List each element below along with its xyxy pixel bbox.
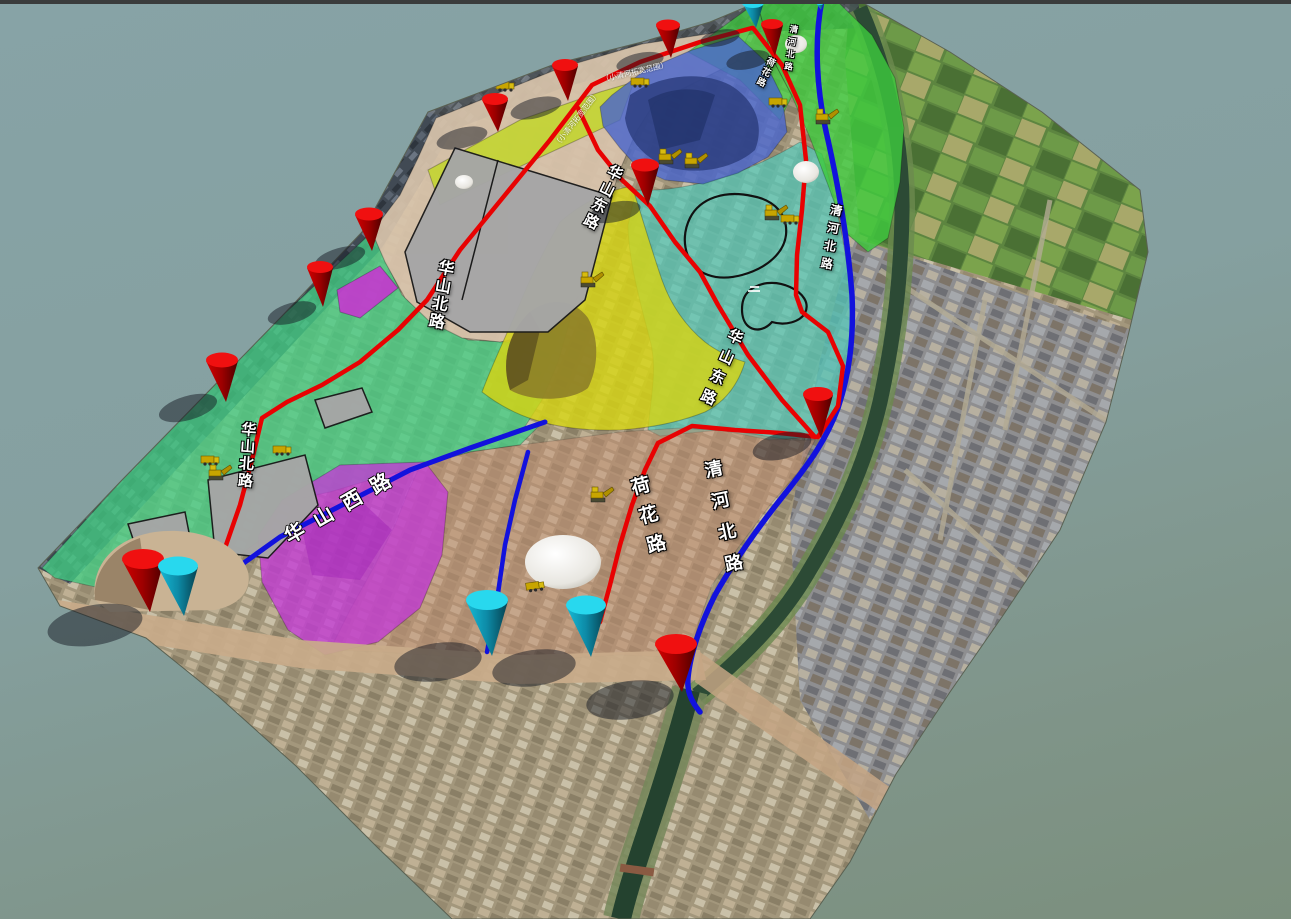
satellite-terrain	[0, 0, 1291, 919]
dome-small-3	[455, 175, 473, 189]
dome-small-2	[793, 161, 819, 183]
tiny-text-mark	[748, 290, 760, 292]
dome-small-1	[785, 35, 807, 53]
tiny-text-mark	[750, 286, 759, 288]
window-top-bar	[0, 0, 1291, 4]
3d-map-viewport[interactable]: 华山北路 华山北路 华山西路 华山东路 华山东路 荷花路 荷花路 清河北路 清河…	[0, 0, 1291, 919]
dome-large	[525, 535, 601, 589]
terrain-scene	[0, 0, 1291, 919]
